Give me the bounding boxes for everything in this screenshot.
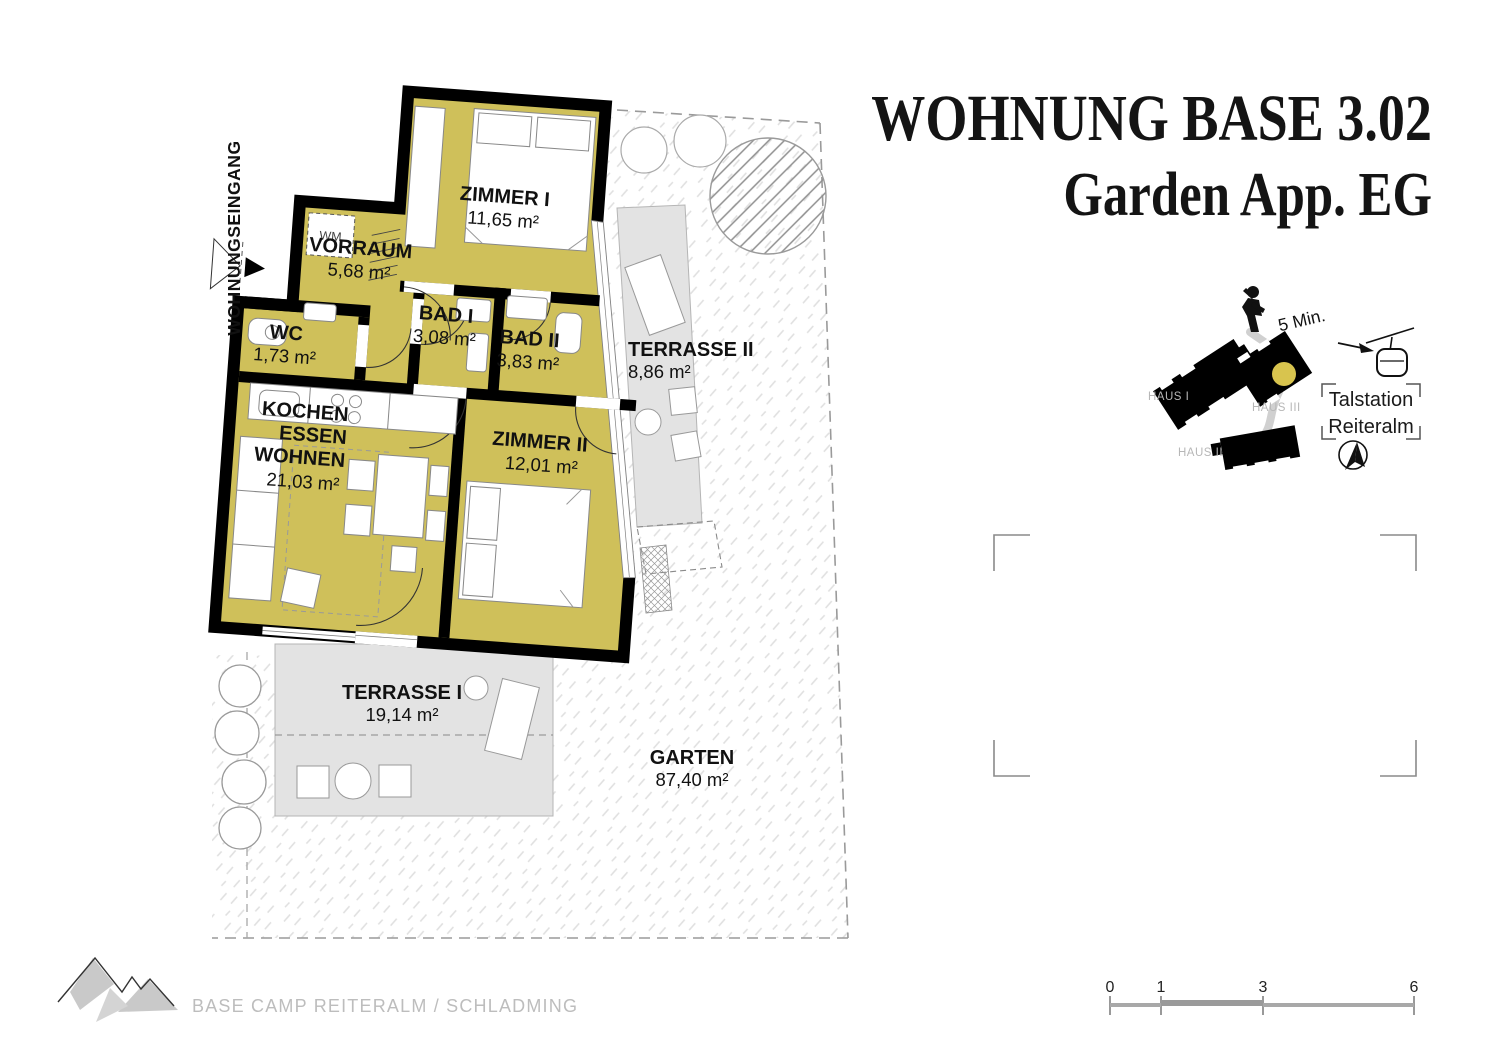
station-label-group: Talstation Reiteralm [1322, 384, 1420, 439]
terrasse1-name: TERRASSE I [342, 682, 462, 704]
zimmer1-furniture [405, 104, 596, 259]
gravel-strip [640, 545, 672, 613]
floorplan-page: WM [0, 0, 1500, 1060]
entrance-label: WOHNUNGSEINGANG [224, 140, 244, 335]
scale-tick1-label: 1 [1157, 979, 1166, 996]
scale-segment [1161, 1000, 1263, 1006]
zimmer2-furniture [458, 481, 590, 608]
tree-icon [621, 127, 667, 173]
page-subtitle: Garden App. EG [1063, 160, 1432, 229]
unit-location-marker [1272, 362, 1296, 386]
tree-icon [674, 115, 726, 167]
apartment-plan: WM [185, 72, 670, 663]
chair-icon [379, 765, 411, 797]
page-title: WOHNUNG BASE 3.02 [871, 82, 1432, 155]
building-haus2 [1210, 425, 1301, 476]
scale-tick0-label: 0 [1106, 979, 1115, 996]
chair-icon [671, 431, 701, 461]
haus1-label: HAUS I [1148, 391, 1189, 403]
mountain-logo [58, 958, 178, 1022]
chair-icon [297, 766, 329, 798]
scale-segment [1110, 1003, 1161, 1007]
bad1-name: BAD I [418, 302, 474, 328]
terrace1 [275, 644, 553, 816]
north-arrow-icon [1339, 441, 1367, 470]
gondola-icon [1366, 328, 1414, 376]
photo-frame-brackets [994, 535, 1416, 776]
floor-plan-canvas: WM [0, 0, 1500, 1060]
chair-icon [669, 387, 698, 416]
wc-name: WC [269, 321, 304, 345]
terrasse2-area: 8,86 m² [628, 361, 691, 382]
person-icon [1242, 286, 1265, 332]
table-icon [335, 763, 371, 799]
table-icon [464, 676, 488, 700]
bad2-name: BAD II [499, 326, 560, 352]
haus3-label: HAUS III [1252, 402, 1301, 414]
direction-arrow [1338, 343, 1362, 348]
garten-name: GARTEN [650, 747, 734, 769]
terrasse2-name: TERRASSE II [628, 339, 754, 361]
scale-segment [1263, 1003, 1414, 1007]
building-haus3 [1231, 328, 1314, 410]
scale-bar: 0 1 3 6 [1106, 979, 1419, 1015]
large-tree-icon [710, 138, 826, 254]
haus2-label: HAUS II [1178, 447, 1223, 459]
arrowhead-icon [1359, 343, 1374, 353]
scale-tick2-label: 3 [1259, 979, 1268, 996]
station-line1: Talstation [1329, 389, 1414, 411]
entrance-arrow-icon [244, 257, 265, 278]
footer: BASE CAMP REITERALM / SCHLADMING [58, 958, 578, 1022]
scale-tick3-label: 6 [1410, 979, 1419, 996]
title-block: WOHNUNG BASE 3.02 Garden App. EG [871, 82, 1432, 229]
footer-project-label: BASE CAMP REITERALM / SCHLADMING [192, 996, 578, 1016]
site-map: 5 Min. HAUS I HAUS III HAUS II Talstatio… [1148, 286, 1420, 477]
walk-time-label: 5 Min. [1276, 305, 1327, 335]
station-line2: Reiteralm [1328, 416, 1414, 438]
terrasse1-area: 19,14 m² [365, 704, 438, 725]
garten-area: 87,40 m² [655, 769, 728, 790]
table-icon [635, 409, 661, 435]
